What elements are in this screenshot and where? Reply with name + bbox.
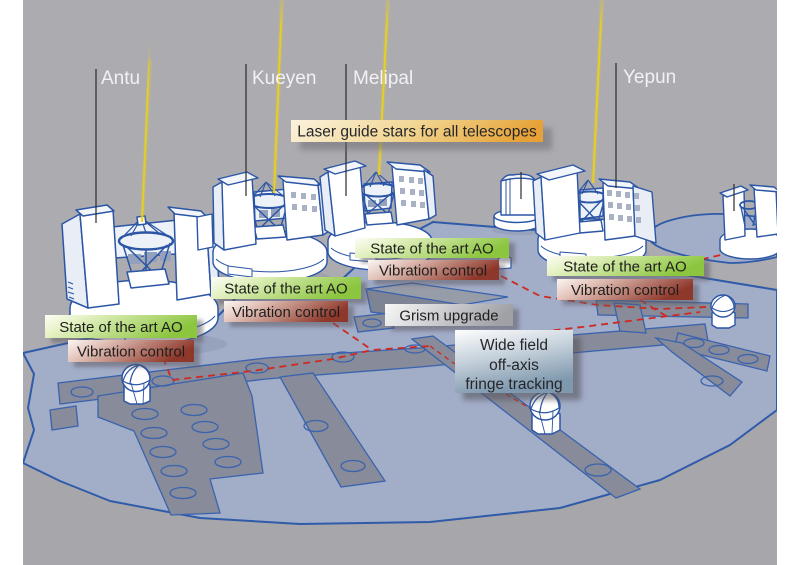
svg-text:Melipal: Melipal [353,68,413,89]
svg-text:State of the art AO: State of the art AO [59,319,182,336]
svg-text:Vibration control: Vibration control [77,344,185,361]
svg-text:Yepun: Yepun [623,67,676,88]
svg-text:fringe tracking: fringe tracking [465,376,562,393]
svg-text:State of the art AO: State of the art AO [370,241,493,258]
svg-text:Vibration control: Vibration control [571,282,679,299]
svg-text:Laser guide stars for all tele: Laser guide stars for all telescopes [297,124,537,141]
svg-text:Antu: Antu [101,68,140,89]
svg-text:Kueyen: Kueyen [252,68,316,89]
svg-text:Vibration control: Vibration control [379,263,487,280]
svg-text:Vibration control: Vibration control [232,304,340,321]
svg-text:State of the art AO: State of the art AO [563,259,686,276]
svg-text:State of the art AO: State of the art AO [224,281,347,298]
svg-text:Wide field: Wide field [480,337,548,354]
svg-text:Grism upgrade: Grism upgrade [399,308,498,325]
svg-text:off-axis: off-axis [489,357,539,374]
